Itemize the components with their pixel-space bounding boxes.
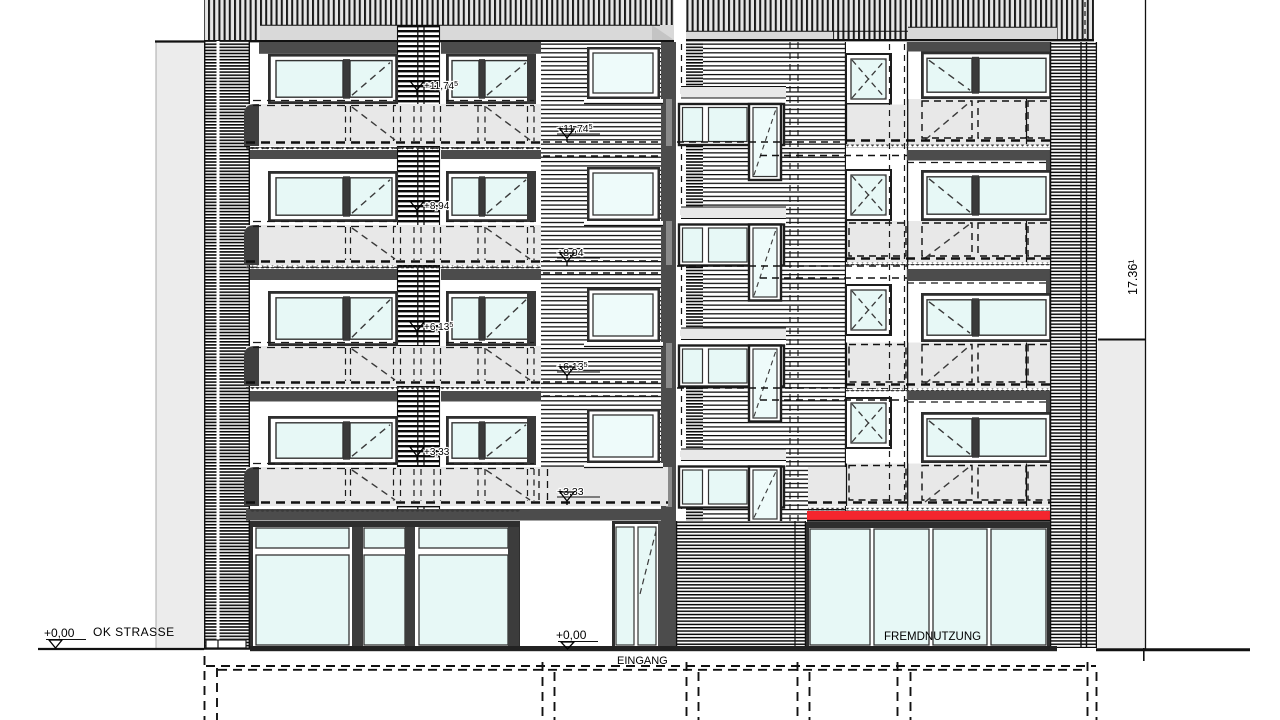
svg-text:OK STRASSE: OK STRASSE <box>93 625 175 639</box>
svg-text:+0,00: +0,00 <box>556 628 587 642</box>
svg-text:+6,135: +6,135 <box>424 322 453 333</box>
svg-text:+0,00: +0,00 <box>44 626 75 640</box>
svg-text:+8,94: +8,94 <box>424 201 450 212</box>
svg-text:17.36¹: 17.36¹ <box>1126 260 1140 295</box>
svg-text:FREMDNUTZUNG: FREMDNUTZUNG <box>884 631 981 643</box>
svg-text:+11,745: +11,745 <box>424 81 458 92</box>
svg-text:+3,33: +3,33 <box>424 447 450 458</box>
